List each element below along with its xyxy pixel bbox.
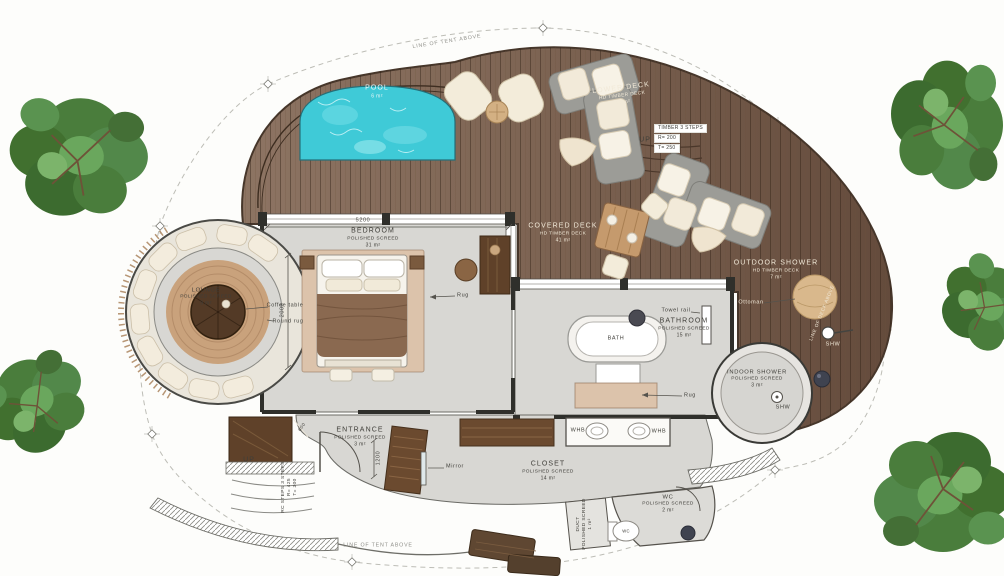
- outdoor-shower-head: [822, 327, 834, 339]
- closet-cabinet: [460, 419, 554, 446]
- room-label-indoor-shower: INDOOR SHOWER POLISHED SCREED 3 m²: [727, 369, 787, 388]
- towel-rail-label: Towel rail: [662, 308, 691, 315]
- floor-plan: POOL 6 m² LOWER DECK HD TIMBER DECK 10 m…: [0, 0, 1004, 576]
- up-label-deck: UP: [639, 137, 651, 146]
- mirror-label: Mirror: [446, 464, 464, 471]
- room-label-wc: WC POLISHED SCREED 2 m²: [642, 494, 694, 513]
- stepping-stones: [468, 529, 560, 576]
- rc-steps-note: RC STEPS 3 STEPS R= 425 T= 300: [281, 461, 299, 512]
- room-label-bathroom: BATHROOM POLISHED SCREED 15 m²: [658, 318, 710, 339]
- room-label-bedroom: BEDROOM POLISHED SCREED 31 m²: [347, 228, 399, 249]
- whb-label-left: WHB: [571, 428, 586, 435]
- entrance-bench: [229, 417, 308, 462]
- rug-label-bathroom: Rug: [684, 393, 696, 400]
- room-label-covered-deck: COVERED DECK HD TIMBER DECK 41 m²: [528, 223, 597, 244]
- room-label-closet: CLOSET POLISHED SCREED 14 m²: [522, 461, 574, 482]
- deck-drain: [814, 371, 830, 387]
- desk-stool: [455, 259, 477, 281]
- floor-plan-canvas: [0, 0, 1004, 576]
- wc-drain: [681, 526, 695, 540]
- whb-label-right: WHB: [652, 429, 667, 436]
- room-label-entrance: ENTRANCE POLISHED SCREED 3 m²: [334, 427, 386, 448]
- shw-label-outdoor: SHW: [826, 342, 841, 349]
- bath-label: BATH: [608, 336, 625, 343]
- room-label-lounge: LOUNGE POLISHED SCREED 9 m²: [180, 287, 232, 306]
- ottoman-label: Ottoman: [738, 300, 763, 307]
- dim-1200: 1200: [376, 451, 383, 466]
- shw-label-indoor: SHW: [776, 405, 791, 412]
- indoor-shower-circle: [712, 343, 812, 443]
- room-label-duct: DUCT POLISHED SCREED 1 m²: [576, 498, 594, 550]
- timber-steps-note: TIMBER 3 STEPS R= 200 T= 250: [654, 124, 707, 154]
- whb-left: [586, 423, 608, 439]
- bed: [300, 255, 424, 381]
- room-label-outdoor-shower: OUTDOOR SHOWER HD TIMBER DECK 7 m²: [734, 260, 819, 281]
- line-of-tent-label-bottom: LINE OF TENT ABOVE: [343, 543, 413, 550]
- room-label-pool: POOL 6 m²: [365, 85, 389, 100]
- round-rug-label: Round rug: [272, 319, 303, 326]
- wc-fixture-label: WC: [622, 528, 629, 533]
- mirror: [421, 452, 426, 485]
- dim-2000: 2000: [280, 303, 287, 318]
- bath-stool: [629, 310, 645, 326]
- up-label-entrance: UP: [243, 457, 255, 466]
- rug-label-bedroom: Rug: [457, 293, 469, 300]
- dim-5200: 5200: [356, 218, 371, 225]
- whb-right: [628, 423, 650, 439]
